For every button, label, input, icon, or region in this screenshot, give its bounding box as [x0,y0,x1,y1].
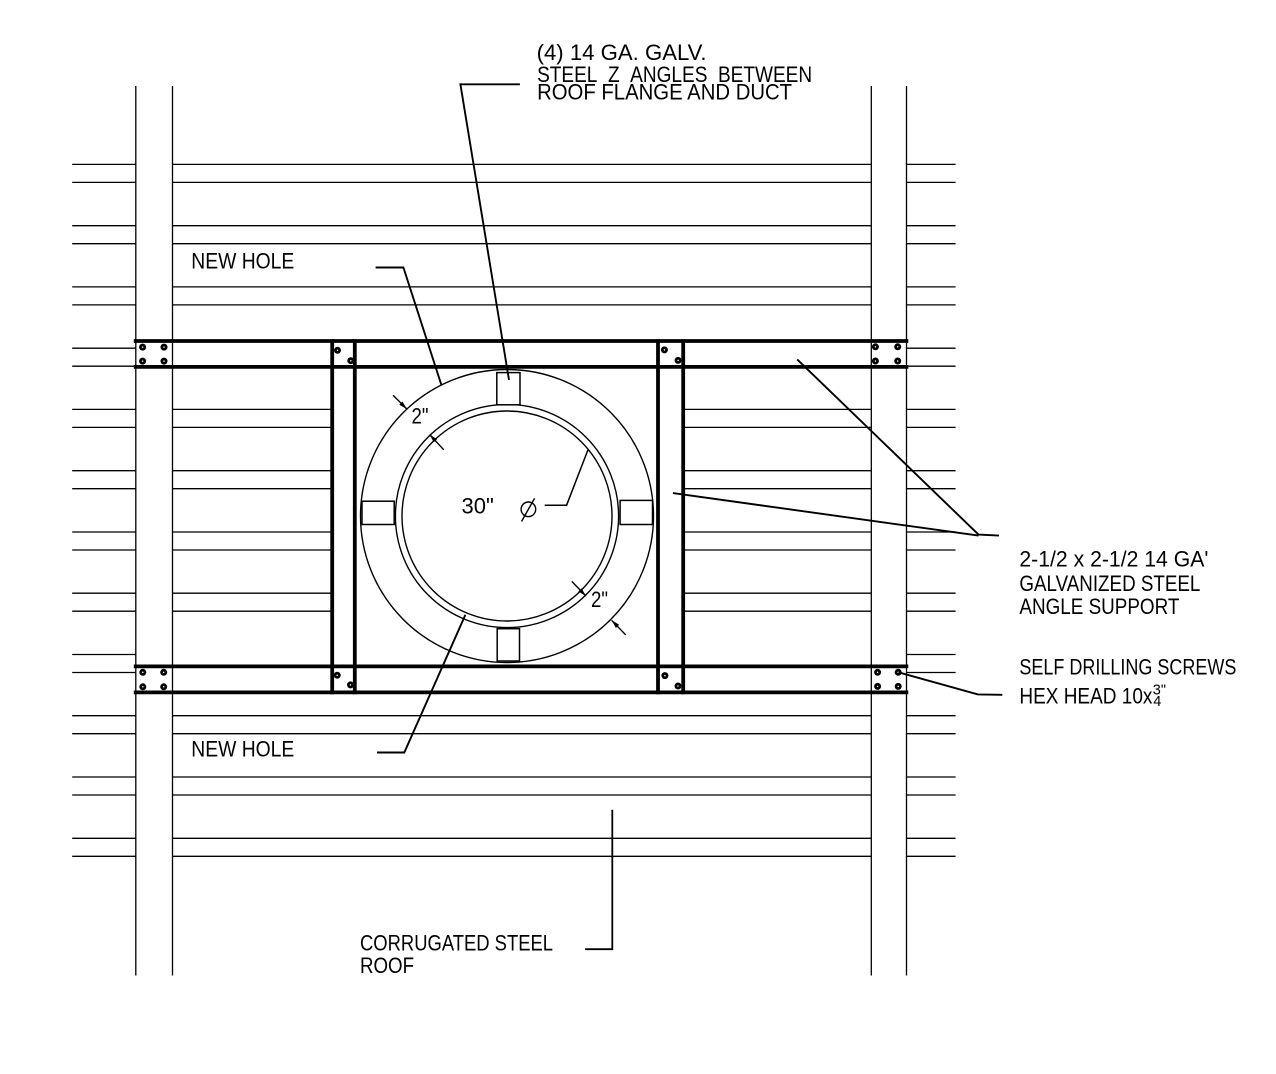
svg-text:ROOF FLANGE AND DUCT: ROOF FLANGE AND DUCT [537,80,792,105]
svg-text:CORRUGATED STEEL: CORRUGATED STEEL [360,931,553,956]
svg-text:2-1/2 x 2-1/2 14 GA': 2-1/2 x 2-1/2 14 GA' [1019,546,1208,571]
svg-text:GALVANIZED STEEL: GALVANIZED STEEL [1019,571,1200,596]
svg-text:SELF DRILLING SCREWS: SELF DRILLING SCREWS [1019,654,1236,679]
svg-text:4: 4 [1153,694,1161,710]
svg-text:ANGLE SUPPORT: ANGLE SUPPORT [1019,594,1179,619]
svg-text:2": 2" [412,404,429,429]
svg-text:ROOF: ROOF [360,953,414,978]
svg-text:2": 2" [591,587,608,612]
svg-text:NEW HOLE: NEW HOLE [191,249,294,274]
svg-text:NEW HOLE: NEW HOLE [191,737,294,762]
svg-text:HEX HEAD 10x: HEX HEAD 10x [1019,683,1152,708]
svg-text:30": 30" [462,494,494,519]
